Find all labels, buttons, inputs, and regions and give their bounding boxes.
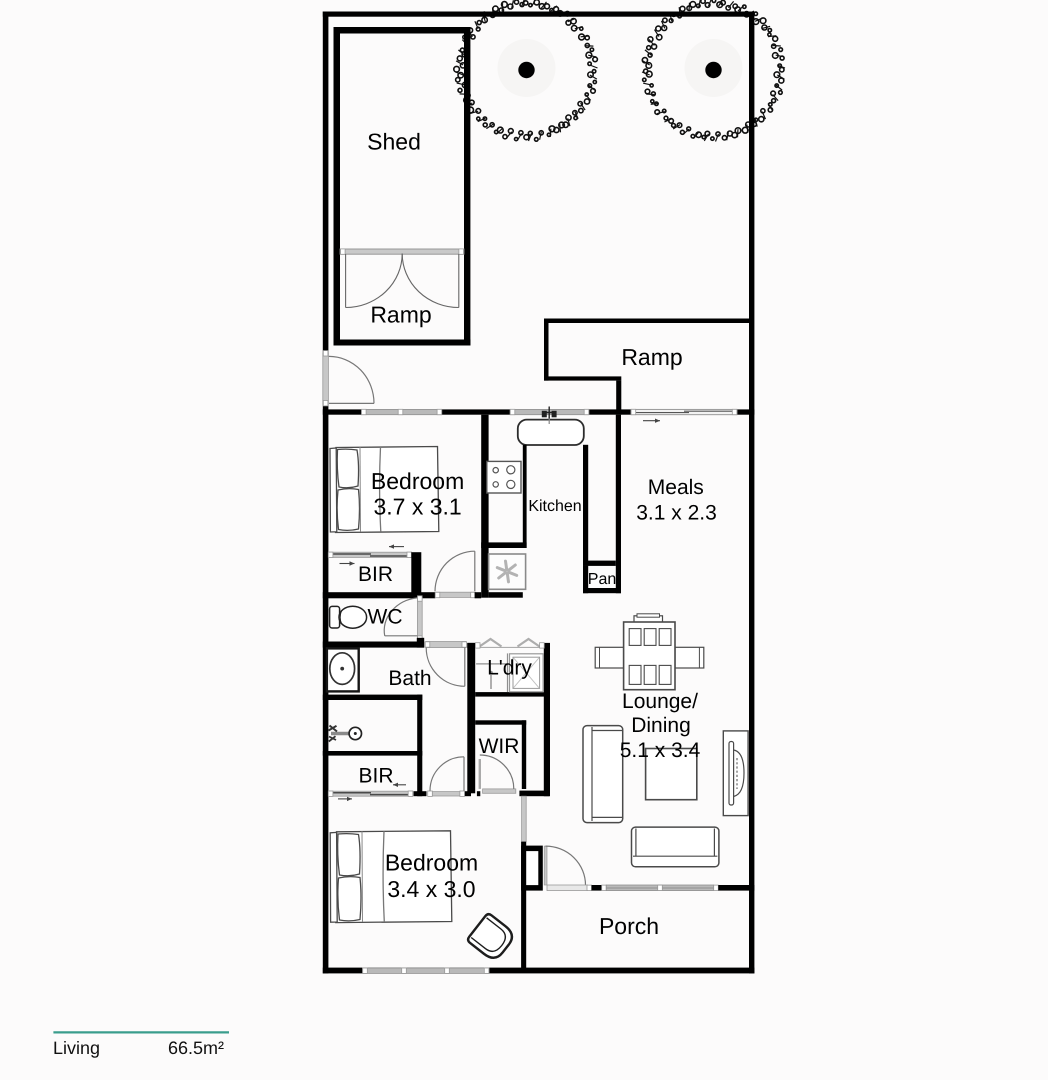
svg-text:WC: WC — [368, 606, 403, 629]
svg-text:BIR: BIR — [358, 765, 393, 788]
svg-text:Ramp: Ramp — [370, 302, 431, 328]
svg-text:3.4 x 3.0: 3.4 x 3.0 — [387, 876, 475, 902]
svg-text:Kitchen: Kitchen — [528, 498, 581, 515]
svg-text:3.7 x 3.1: 3.7 x 3.1 — [373, 494, 461, 520]
svg-text:Bedroom: Bedroom — [385, 850, 478, 876]
svg-text:Living: Living — [53, 1038, 100, 1058]
svg-text:Porch: Porch — [599, 913, 659, 939]
svg-text:Bedroom: Bedroom — [371, 468, 464, 494]
svg-text:Lounge/: Lounge/ — [622, 690, 698, 713]
svg-text:Bath: Bath — [388, 667, 431, 690]
svg-text:Ramp: Ramp — [621, 344, 682, 370]
svg-text:WIR: WIR — [479, 735, 520, 758]
svg-text:L'dry: L'dry — [487, 657, 532, 680]
svg-text:Dining: Dining — [631, 714, 691, 737]
svg-text:BIR: BIR — [358, 563, 393, 586]
svg-text:3.1 x 2.3: 3.1 x 2.3 — [636, 502, 717, 525]
svg-text:66.5m²: 66.5m² — [168, 1038, 224, 1058]
svg-text:5.1 x 3.4: 5.1 x 3.4 — [620, 739, 701, 762]
svg-text:Shed: Shed — [367, 129, 421, 155]
svg-text:Pan: Pan — [588, 571, 616, 588]
svg-text:Meals: Meals — [648, 476, 704, 499]
